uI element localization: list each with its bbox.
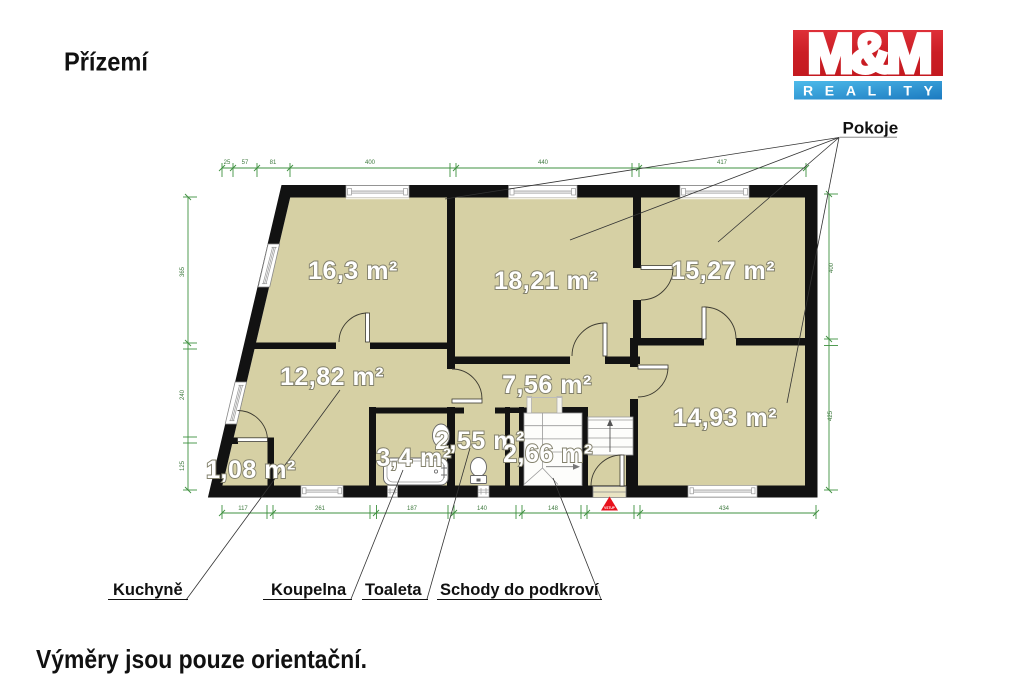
svg-text:Přízemí: Přízemí	[64, 47, 149, 77]
svg-text:7,56 m²: 7,56 m²	[502, 371, 592, 399]
svg-text:440: 440	[538, 160, 549, 166]
svg-text:417: 417	[717, 160, 728, 166]
svg-text:15,27 m²: 15,27 m²	[671, 257, 775, 285]
svg-text:434: 434	[719, 506, 730, 512]
svg-text:140: 140	[477, 506, 488, 512]
svg-text:425: 425	[828, 410, 834, 421]
svg-text:Koupelna: Koupelna	[271, 581, 347, 599]
svg-text:125: 125	[180, 460, 186, 471]
svg-text:1,08 m²: 1,08 m²	[206, 456, 296, 484]
svg-text:14,93 m²: 14,93 m²	[673, 404, 777, 432]
svg-text:Schody do podkroví: Schody do podkroví	[440, 581, 600, 599]
svg-text:117: 117	[238, 506, 248, 512]
svg-text:81: 81	[270, 160, 277, 166]
svg-text:365: 365	[180, 266, 186, 277]
svg-text:18,21 m²: 18,21 m²	[494, 267, 598, 295]
svg-text:240: 240	[180, 389, 186, 400]
svg-text:2,66 m²: 2,66 m²	[503, 440, 593, 468]
svg-text:187: 187	[407, 506, 418, 512]
svg-text:261: 261	[315, 506, 326, 512]
svg-text:M&M: M&M	[807, 22, 929, 85]
svg-text:Pokoje: Pokoje	[843, 119, 899, 138]
svg-text:400: 400	[365, 160, 376, 166]
svg-text:148: 148	[548, 506, 559, 512]
svg-text:Kuchyně: Kuchyně	[113, 581, 183, 599]
svg-text:3,4 m²: 3,4 m²	[376, 444, 451, 472]
svg-text:Výměry jsou pouze orientační.: Výměry jsou pouze orientační.	[36, 644, 367, 674]
svg-text:400: 400	[829, 262, 835, 273]
svg-text:Toaleta: Toaleta	[365, 581, 422, 599]
svg-text:25: 25	[224, 160, 231, 166]
svg-text:16,3 m²: 16,3 m²	[308, 257, 398, 285]
svg-text:VSTUP: VSTUP	[604, 506, 616, 510]
svg-text:12,82 m²: 12,82 m²	[280, 363, 384, 391]
svg-text:57: 57	[242, 160, 249, 166]
